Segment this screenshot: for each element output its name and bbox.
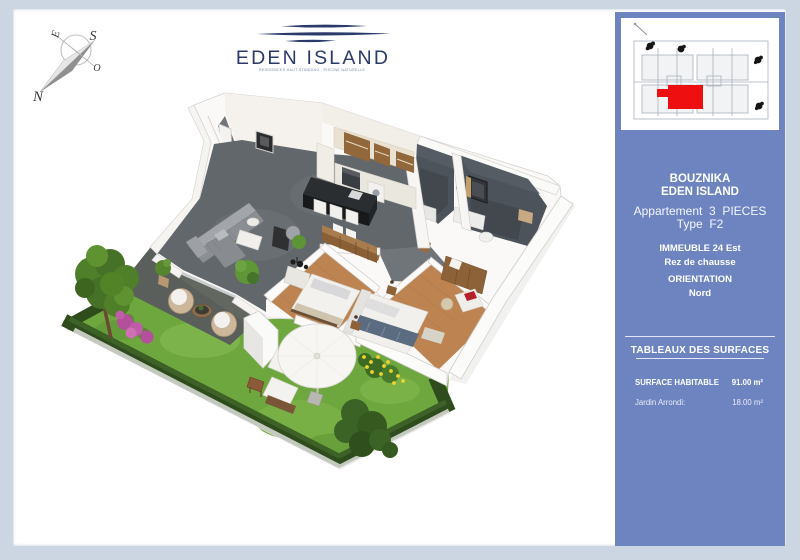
svg-text:RESIDENCES HAUT STANDING - PIS: RESIDENCES HAUT STANDING - PISCINE NATUR… (259, 68, 365, 72)
svg-text:EDEN ISLAND: EDEN ISLAND (236, 47, 390, 69)
svg-text:S: S (90, 29, 97, 44)
svg-text:E: E (49, 29, 63, 40)
svg-text:O: O (93, 63, 100, 74)
svg-text:N: N (32, 89, 44, 105)
